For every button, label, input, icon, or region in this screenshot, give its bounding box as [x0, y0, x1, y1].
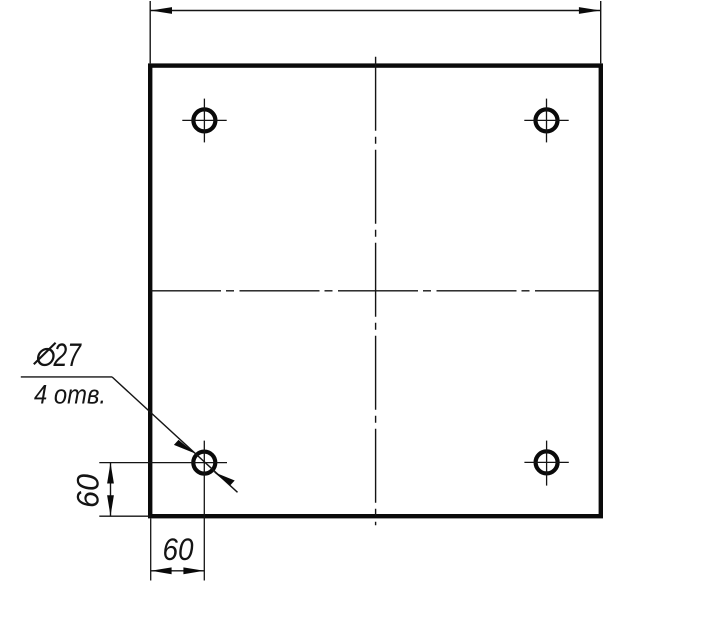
svg-text:60: 60 — [163, 531, 194, 567]
svg-text:27: 27 — [53, 337, 82, 373]
svg-text:4 отв.: 4 отв. — [34, 380, 106, 410]
svg-text:60: 60 — [70, 474, 106, 508]
